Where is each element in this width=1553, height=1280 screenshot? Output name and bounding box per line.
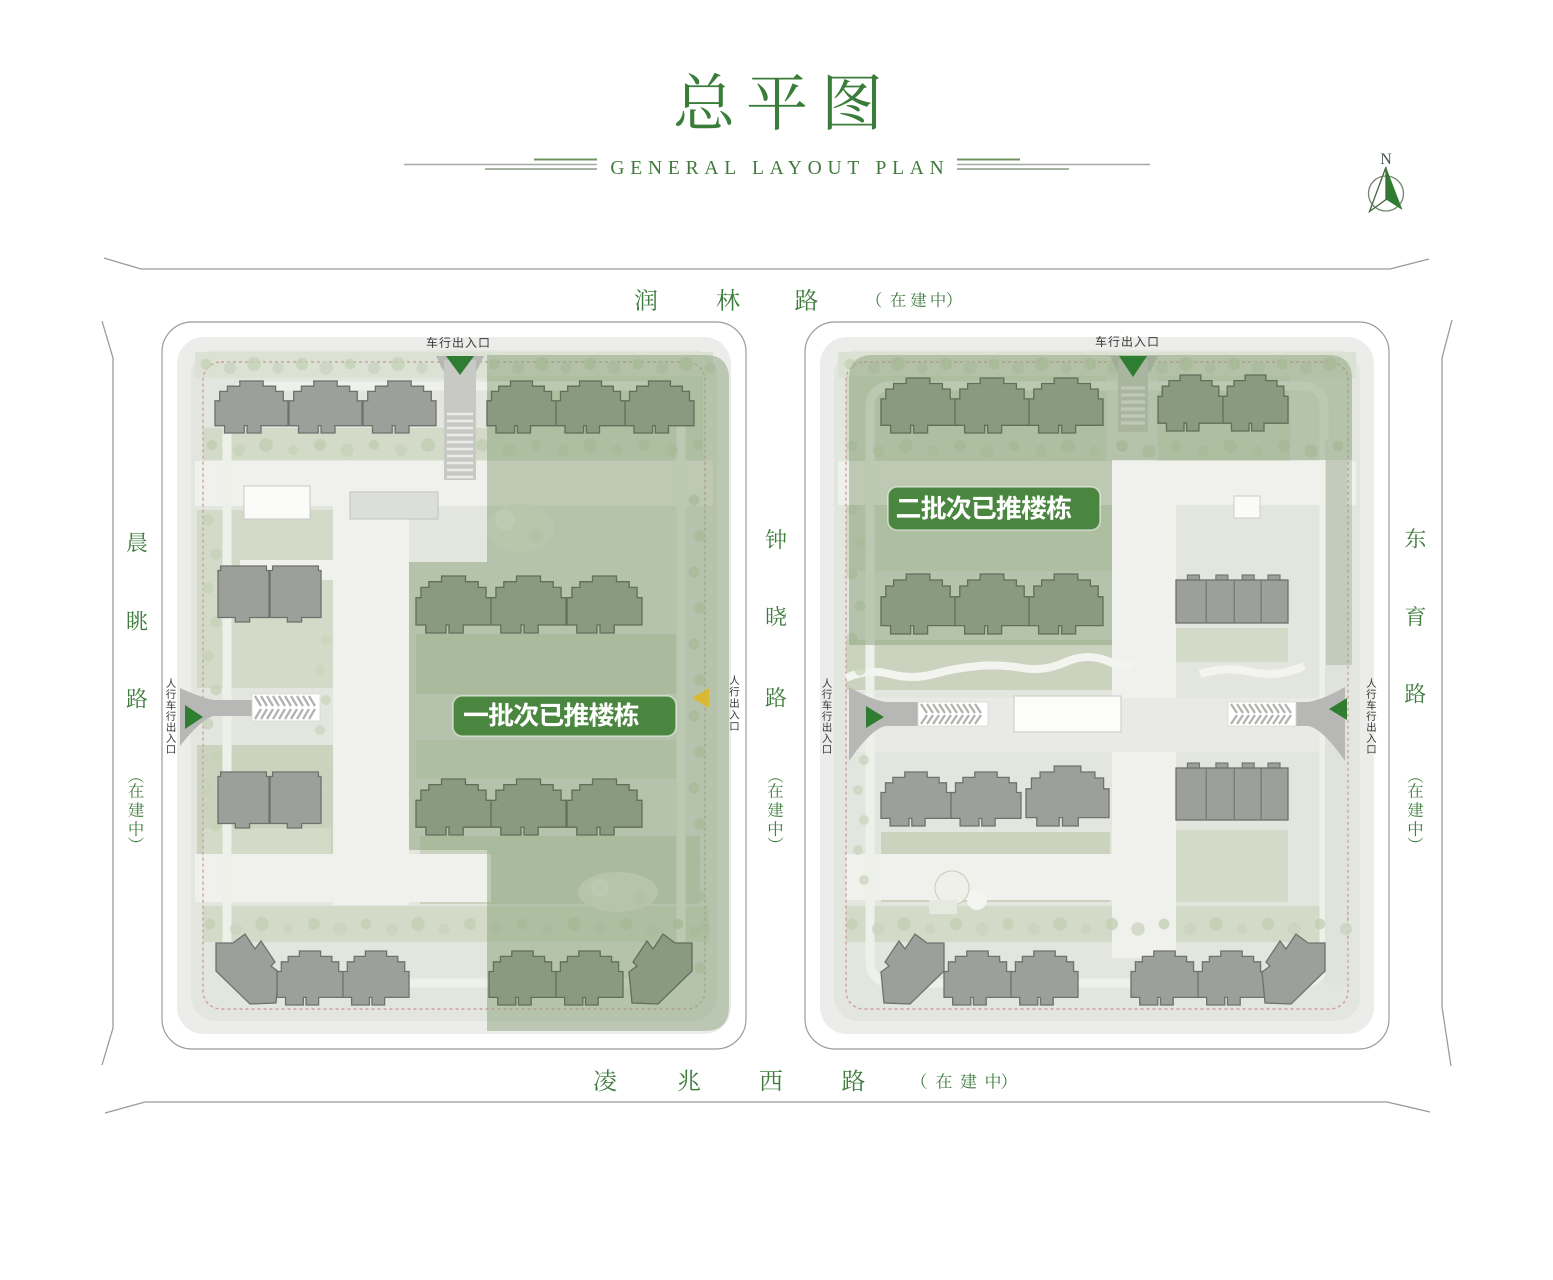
svg-text:GENERAL LAYOUT PLAN: GENERAL LAYOUT PLAN <box>610 158 949 179</box>
svg-text:N: N <box>1380 151 1392 168</box>
